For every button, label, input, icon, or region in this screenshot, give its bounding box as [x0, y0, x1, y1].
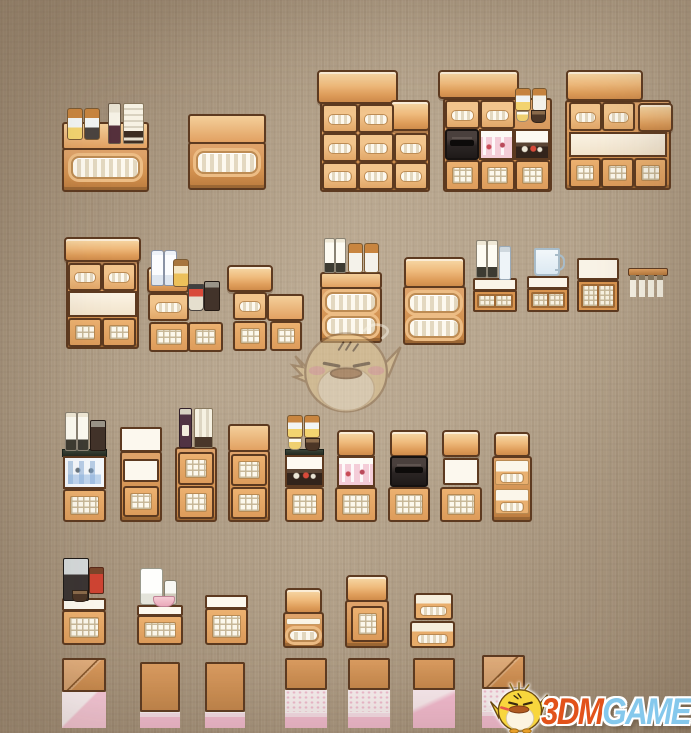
jar-part — [364, 243, 379, 273]
cloth-counter-tall — [205, 662, 245, 728]
bucket-part — [188, 284, 204, 311]
drw-part — [602, 102, 635, 131]
brand-text-game: GAME — [602, 691, 690, 732]
stand-display-pink — [335, 430, 377, 522]
cup-part — [305, 438, 320, 451]
white-part — [205, 595, 248, 609]
clothdiag-part — [62, 692, 106, 728]
dg-part — [569, 158, 601, 188]
cream-part — [68, 291, 137, 317]
dg-part — [137, 615, 183, 645]
stand-white-panel — [440, 430, 482, 522]
dg-part — [601, 158, 634, 188]
drw-part — [394, 162, 428, 190]
sprite-sheet-canvas: 3DMGAME — [0, 0, 691, 733]
speck-part — [285, 690, 327, 712]
counter-stepped-plain — [227, 265, 304, 352]
dg-part — [178, 486, 214, 519]
cap-part — [438, 70, 519, 99]
clothdiag2-part — [413, 690, 455, 728]
dg-part — [388, 487, 430, 522]
dg-part — [440, 487, 482, 522]
bottle-part — [108, 103, 121, 144]
cloth-counter-pinkdiag — [413, 658, 455, 728]
milk-part — [77, 412, 89, 451]
clothstrip-part — [285, 712, 327, 728]
pinkbowl-part — [153, 596, 175, 607]
jar-part — [532, 88, 547, 111]
clothstrip-part — [205, 712, 245, 728]
counter-plain-white — [205, 595, 248, 645]
brand-text-3dm: 3DM — [541, 691, 602, 732]
oven-part — [445, 129, 479, 160]
cup-part — [531, 110, 546, 123]
dg-part — [351, 606, 384, 642]
counter-two-pills-items — [320, 238, 382, 343]
drw-part — [322, 162, 358, 190]
dg-part — [178, 452, 214, 485]
drw-part — [480, 100, 515, 129]
speck-part — [482, 689, 525, 711]
top-part — [228, 424, 270, 452]
cap-part — [285, 588, 322, 614]
stack-part — [123, 103, 144, 144]
brand-text: 3DMGAME — [541, 693, 690, 730]
drw-part — [102, 263, 136, 291]
white-part — [120, 427, 162, 452]
stand-display-jars — [285, 415, 324, 522]
jar-part — [84, 108, 100, 140]
dg-part — [515, 160, 550, 191]
stand-two-grids — [228, 424, 270, 522]
drw-part — [358, 162, 394, 190]
clothstrip-part — [140, 712, 180, 728]
cap-part — [566, 70, 643, 101]
counter-grinder — [62, 558, 106, 645]
oven-part — [390, 456, 428, 487]
cloth-counter-tall — [140, 662, 180, 728]
topwhite-part — [577, 258, 619, 280]
cap-part — [390, 430, 428, 457]
stand-white-panels — [120, 427, 162, 522]
cabinet-doors-plain — [577, 258, 619, 312]
dg-part — [335, 487, 377, 522]
drw-part — [358, 104, 394, 133]
counter-small-jars — [62, 103, 149, 192]
honey-part — [173, 259, 189, 287]
white-part — [123, 459, 159, 482]
speck-part — [348, 690, 390, 712]
top-part — [267, 294, 304, 321]
bottle-part — [499, 246, 511, 280]
dg-part — [205, 608, 248, 645]
dg-part — [102, 318, 136, 347]
doors-part — [577, 280, 619, 312]
dpill-part — [71, 156, 140, 179]
dg-part — [62, 610, 106, 645]
cabinet-appliances — [435, 70, 552, 192]
dg-part — [188, 322, 223, 352]
milk-part — [487, 240, 498, 278]
pillband-part — [495, 460, 529, 485]
dg-part — [634, 158, 667, 188]
topwood-part — [140, 662, 180, 712]
dg-part — [270, 321, 302, 351]
topwood-part — [348, 658, 390, 690]
darkjar-part — [204, 281, 220, 311]
dg-part — [480, 160, 515, 191]
counter-cap-pill — [283, 588, 324, 648]
cloth-counter-speck — [348, 658, 390, 728]
cloth-counter-speck — [285, 658, 327, 728]
stand-two-grids-items — [175, 408, 217, 522]
cap-part — [337, 430, 375, 457]
topwood-part — [285, 658, 327, 690]
cap-part — [227, 265, 273, 292]
counter-two-pills — [402, 257, 467, 345]
stand-two-pillbands — [492, 432, 532, 522]
drw-part — [394, 133, 428, 162]
cabinet-creamband-tall — [62, 237, 143, 349]
darkjar-part — [90, 420, 106, 451]
dpill-part — [325, 292, 377, 312]
cup-part — [72, 590, 88, 602]
cup-part — [516, 111, 529, 122]
cap-part — [404, 257, 465, 288]
dpill-part — [408, 318, 460, 338]
topwoodd-part — [482, 655, 525, 689]
dg-part — [233, 321, 267, 351]
hanging-rack — [628, 268, 668, 298]
dpill-part — [196, 151, 258, 174]
dg-part — [123, 486, 159, 517]
doors-part — [527, 288, 569, 312]
cloth-counter-seam — [482, 655, 525, 728]
stand-icebox — [62, 412, 107, 522]
dg-part — [231, 454, 267, 486]
pitcher-part — [534, 248, 560, 276]
pillband-part — [495, 489, 529, 514]
cap-part — [494, 432, 530, 457]
cap-part — [638, 103, 673, 132]
darkcase-part — [514, 129, 550, 160]
jar-part — [287, 415, 303, 438]
cap-part — [390, 100, 430, 131]
cap-part — [346, 575, 388, 602]
dg-part — [68, 318, 102, 347]
whiteline-part — [286, 618, 321, 625]
dpill-part — [325, 316, 377, 336]
dpill-part — [288, 629, 319, 642]
sack-part — [151, 250, 164, 286]
cabinet-doors-milk — [473, 240, 517, 312]
milk-part — [65, 412, 77, 451]
pillbox-part — [414, 593, 453, 620]
topwood-part — [413, 658, 455, 690]
counter-cooker — [137, 568, 183, 645]
cabinet-creamband — [563, 70, 673, 190]
redjar-part — [89, 567, 104, 594]
hang-part — [630, 275, 666, 297]
jar-part — [348, 243, 363, 273]
dg-part — [149, 322, 189, 352]
drw-part — [68, 263, 102, 291]
white-part — [443, 458, 479, 485]
drw-part — [148, 293, 189, 321]
darkcase-part — [285, 455, 324, 487]
stand-oven — [388, 430, 430, 522]
pinkcase-part — [479, 129, 514, 160]
jar-part — [67, 108, 83, 140]
drw-part — [322, 133, 358, 162]
drw-part — [358, 133, 394, 162]
clothstrip-part — [482, 711, 525, 728]
counter-cap-grid — [345, 575, 389, 648]
clothstrip-part — [348, 712, 390, 728]
drawers-stacked — [410, 593, 455, 648]
drw-part — [445, 100, 480, 129]
milk-part — [335, 238, 346, 273]
cup-part — [288, 438, 302, 450]
milk-part — [476, 240, 487, 278]
milk-part — [324, 238, 335, 273]
cap-part — [317, 70, 398, 104]
drw-part — [322, 104, 358, 133]
darkbottle-part — [179, 408, 192, 448]
cap-part — [64, 237, 141, 262]
cloth-counter-diag — [62, 658, 106, 728]
counter-small-plain — [188, 114, 266, 190]
pinkcase-part — [337, 456, 375, 487]
dg-part — [63, 489, 106, 522]
cabinet-doors-pitcher — [527, 248, 569, 312]
top-part — [188, 114, 266, 144]
drw-part — [233, 292, 267, 320]
cap-part — [442, 430, 480, 457]
pillbox-part — [410, 621, 455, 648]
jar-part — [515, 88, 531, 111]
cabinet-drawers-3col — [313, 70, 430, 192]
dg-part — [285, 487, 324, 522]
cream-part — [569, 132, 667, 157]
jar-part — [304, 415, 320, 438]
dpill-part — [408, 293, 460, 313]
dg-part — [231, 487, 267, 519]
drw-part — [569, 102, 602, 131]
counter-stepped-goods — [147, 250, 224, 352]
topwood-part — [205, 662, 245, 712]
bluecase-part — [63, 456, 106, 489]
canister-part — [194, 408, 213, 448]
doors-part — [473, 290, 517, 312]
topwoodd-part — [62, 658, 106, 692]
dg-part — [445, 160, 480, 191]
